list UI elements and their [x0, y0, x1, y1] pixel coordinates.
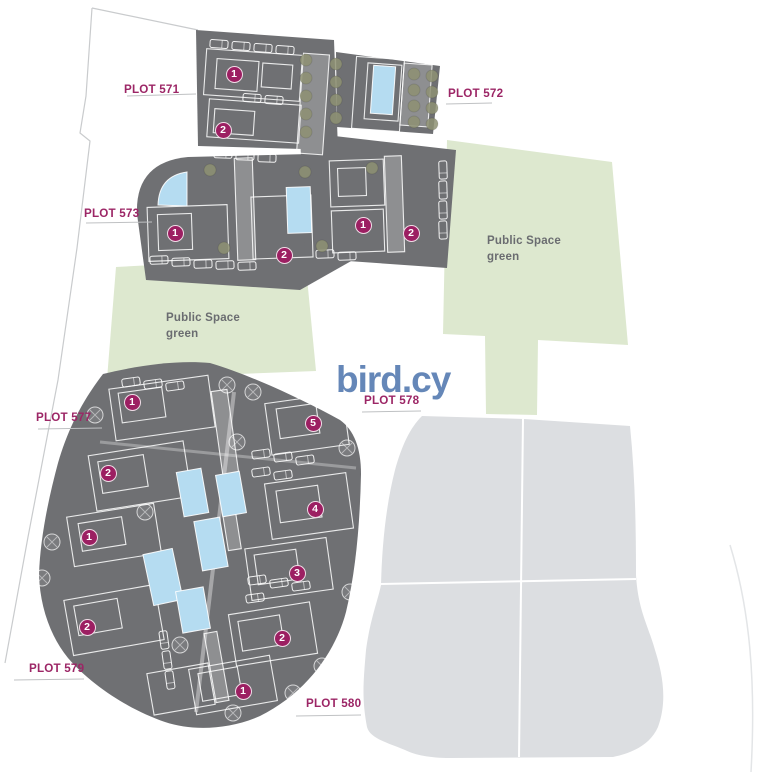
tree-icon [219, 377, 235, 393]
unit-badge: 1 [124, 394, 141, 411]
tree-icon [137, 504, 153, 520]
tree-icon [426, 118, 438, 130]
tree-icon [314, 658, 330, 674]
building-outline [384, 156, 404, 253]
tree-icon [312, 392, 328, 408]
unit-badge: 1 [355, 217, 372, 234]
public-space-label-line1: Public Space [166, 311, 240, 327]
tree-icon [225, 705, 241, 721]
tree-icon [300, 72, 312, 84]
tree-icon [408, 116, 420, 128]
unit-badge: 1 [226, 66, 243, 83]
tree-icon [426, 102, 438, 114]
unit-badge: 2 [403, 225, 420, 242]
site-plan: PLOT 571PLOT 572PLOT 573PLOT 577PLOT 578… [0, 0, 780, 772]
tree-icon [300, 54, 312, 66]
unit-badge: 1 [81, 529, 98, 546]
unit-badge: 1 [167, 225, 184, 242]
unit-badge: 4 [307, 501, 324, 518]
swimming-pool [370, 65, 395, 114]
tree-icon [172, 637, 188, 653]
unit-badge: 2 [79, 619, 96, 636]
public-space-label: Public Spacegreen [487, 234, 561, 265]
unit-badge: 2 [100, 465, 117, 482]
tree-icon [300, 90, 312, 102]
plot-label-577: PLOT 577 [36, 410, 91, 424]
tree-icon [218, 242, 230, 254]
plot-label-571: PLOT 571 [124, 82, 179, 96]
tree-icon [300, 108, 312, 120]
tree-icon [426, 70, 438, 82]
leader-line [362, 411, 421, 412]
unit-badge: 2 [276, 247, 293, 264]
future-plot-area [364, 416, 664, 758]
tree-icon [44, 534, 60, 550]
public-space-green-right [443, 140, 628, 415]
tree-icon [34, 570, 50, 586]
unit-badge: 2 [215, 122, 232, 139]
tree-icon [300, 126, 312, 138]
leader-line [446, 103, 492, 104]
tree-icon [330, 76, 342, 88]
leader-line [14, 679, 84, 680]
unit-badge: 5 [305, 415, 322, 432]
building-outline [234, 158, 256, 261]
tree-icon [339, 440, 355, 456]
public-space-label-line2: green [487, 250, 561, 266]
tree-icon [366, 162, 378, 174]
plot-label-579: PLOT 579 [29, 661, 84, 675]
tree-icon [426, 86, 438, 98]
plot-label-580: PLOT 580 [306, 696, 361, 710]
tree-icon [408, 100, 420, 112]
unit-badge: 3 [289, 565, 306, 582]
public-space-label-line2: green [166, 327, 240, 343]
tree-icon [330, 94, 342, 106]
public-space-label: Public Spacegreen [166, 311, 240, 342]
tree-icon [245, 384, 261, 400]
tree-icon [342, 584, 358, 600]
swimming-pool [286, 187, 312, 234]
public-space-label-line1: Public Space [487, 234, 561, 250]
watermark-logo: bird.cy [336, 361, 450, 398]
leader-line [296, 715, 361, 716]
tree-icon [285, 685, 301, 701]
unit-badge: 1 [235, 683, 252, 700]
tree-icon [299, 166, 311, 178]
tree-icon [316, 240, 328, 252]
tree-icon [330, 112, 342, 124]
tree-icon [408, 68, 420, 80]
plot-label-573: PLOT 573 [84, 206, 139, 220]
tree-icon [330, 58, 342, 70]
plot-label-572: PLOT 572 [448, 86, 503, 100]
tree-icon [204, 164, 216, 176]
unit-badge: 2 [274, 630, 291, 647]
tree-icon [229, 434, 245, 450]
tree-icon [408, 84, 420, 96]
